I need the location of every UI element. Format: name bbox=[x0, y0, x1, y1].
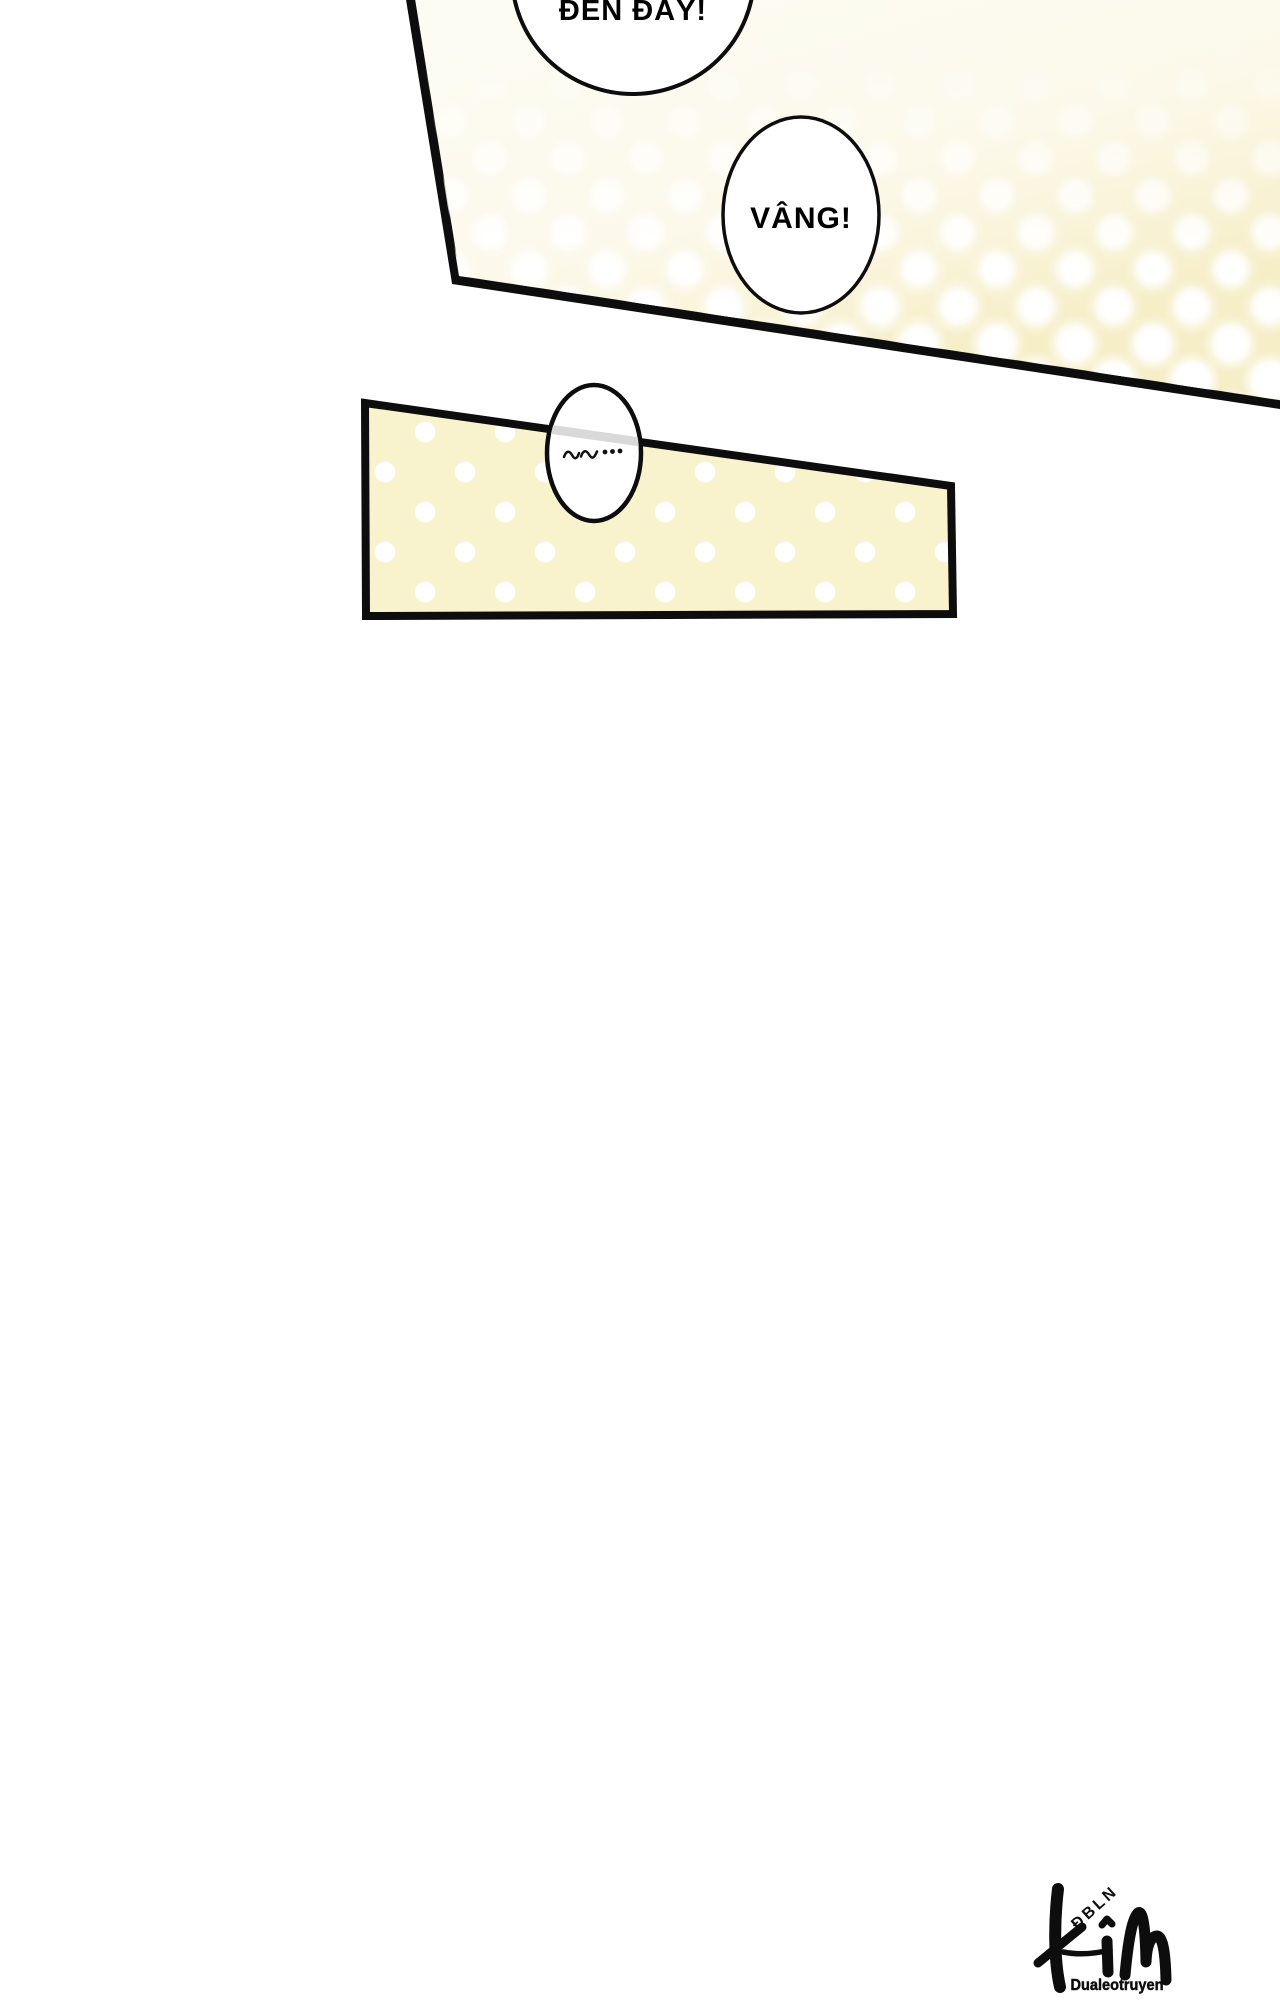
svg-text:Dualeotruyen: Dualeotruyen bbox=[1071, 1977, 1164, 1994]
svg-text:VÂNG!: VÂNG! bbox=[750, 201, 852, 235]
svg-text:ĐẾN ĐÂY!: ĐẾN ĐÂY! bbox=[559, 0, 707, 27]
